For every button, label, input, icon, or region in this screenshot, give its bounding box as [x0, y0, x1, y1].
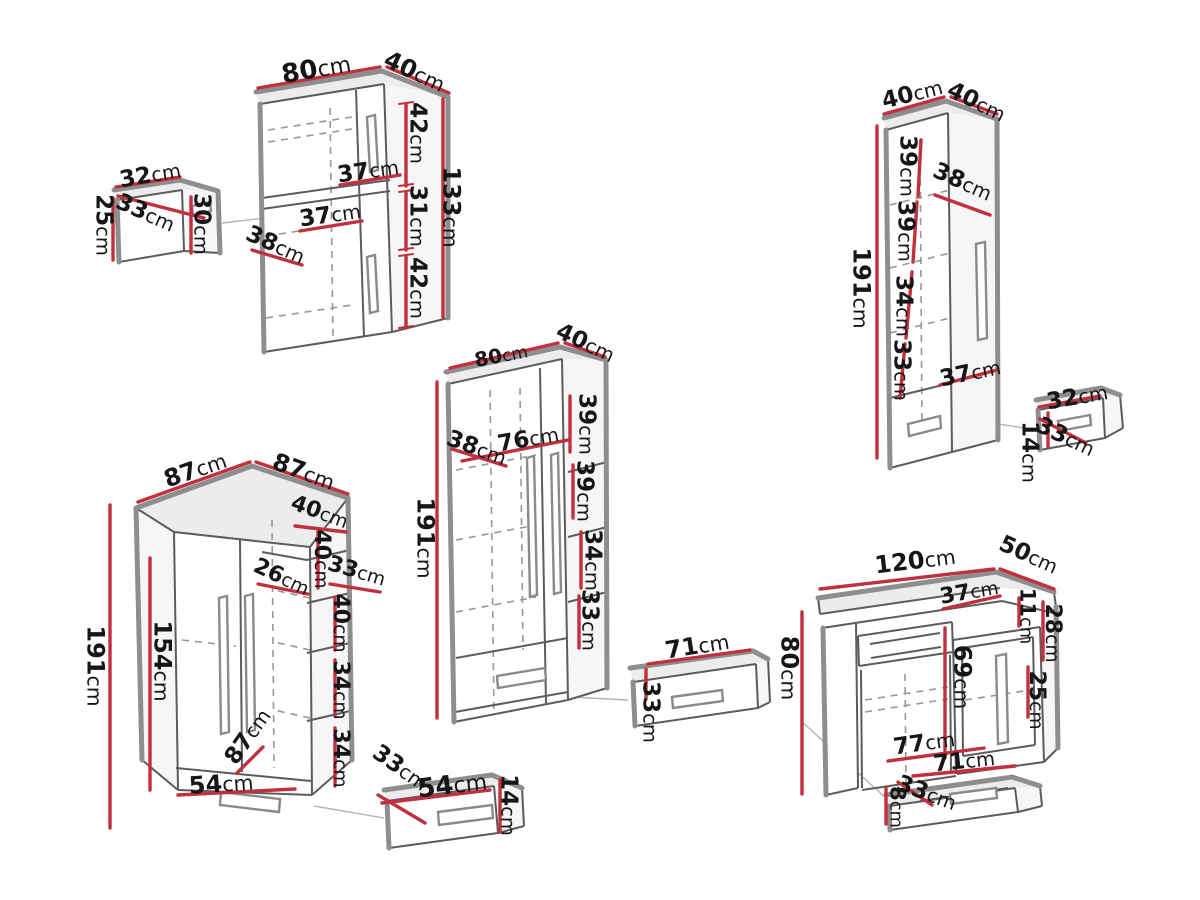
wall-cabinet-dim-8-133cm: 133cm	[437, 166, 465, 247]
corner-wardrobe-dim-10-154cm: 154cm	[148, 620, 176, 701]
tall-cabinet-dim-6-33cm: 33cm	[889, 339, 915, 401]
wardrobe-dim-2-39cm: 39cm	[574, 393, 600, 455]
desk-drawer-dim-2-8cm: 8cm	[885, 786, 909, 828]
desk-dim-4-28cm: 28cm	[1040, 603, 1065, 662]
desk-dim-7-25cm: 25cm	[1024, 670, 1049, 729]
corner-wardrobe-dim-8-34cm: 34cm	[328, 728, 353, 787]
wall-cabinet-dim-4-31cm: 31cm	[405, 185, 431, 247]
door-handle	[976, 242, 987, 340]
door-handle	[367, 255, 378, 313]
tall-cabinet-dim-5-34cm: 34cm	[891, 275, 917, 337]
hanging-drawer-dim-2-14cm: 14cm	[1017, 421, 1043, 483]
wardrobe-dim-6-34cm: 34cm	[580, 529, 606, 591]
tall-cabinet-dim-8-191cm: 191cm	[847, 247, 875, 328]
underbed-drawer-dim-2-14cm: 14cm	[496, 774, 522, 836]
tall-cabinet-dim-3-39cm: 39cm	[895, 135, 921, 197]
wall-cabinet-dim-2-42cm: 42cm	[405, 102, 431, 164]
furniture-dimension-diagram: 80cm40cm42cm37cm31cm37cm38cm42cm133cm32c…	[0, 0, 1200, 900]
desk-dim-3-11cm: 11cm	[1015, 588, 1039, 644]
wardrobe-dim-8-191cm: 191cm	[411, 497, 439, 578]
wall-box-dim-2-25cm: 25cm	[91, 194, 117, 256]
corner-wardrobe-dim-7-34cm: 34cm	[328, 660, 353, 719]
desk-dim-5-80cm: 80cm	[775, 636, 803, 700]
wardrobe-dim-5-39cm: 39cm	[572, 460, 598, 522]
corner-wardrobe-dim-12-54cm: 54cm	[188, 767, 254, 799]
drawer-dim-1-33cm: 33cm	[638, 681, 664, 743]
door-handle	[219, 596, 229, 734]
wall-box-dim-3-30cm: 30cm	[189, 193, 215, 255]
tall-cabinet-dim-4-39cm: 39cm	[893, 200, 919, 262]
wall-cabinet-dim-7-42cm: 42cm	[405, 257, 431, 319]
wardrobe-dim-7-33cm: 33cm	[577, 589, 603, 651]
desk-dim-6-69cm: 69cm	[948, 645, 976, 709]
corner-wardrobe-dim-6-40cm: 40cm	[328, 593, 353, 652]
door-handle	[996, 654, 1008, 744]
diagram-canvas: 80cm40cm42cm37cm31cm37cm38cm42cm133cm32c…	[0, 0, 1200, 900]
corner-wardrobe-dim-9-191cm: 191cm	[81, 625, 109, 706]
door-handle	[551, 453, 561, 594]
door-handle	[527, 456, 537, 597]
